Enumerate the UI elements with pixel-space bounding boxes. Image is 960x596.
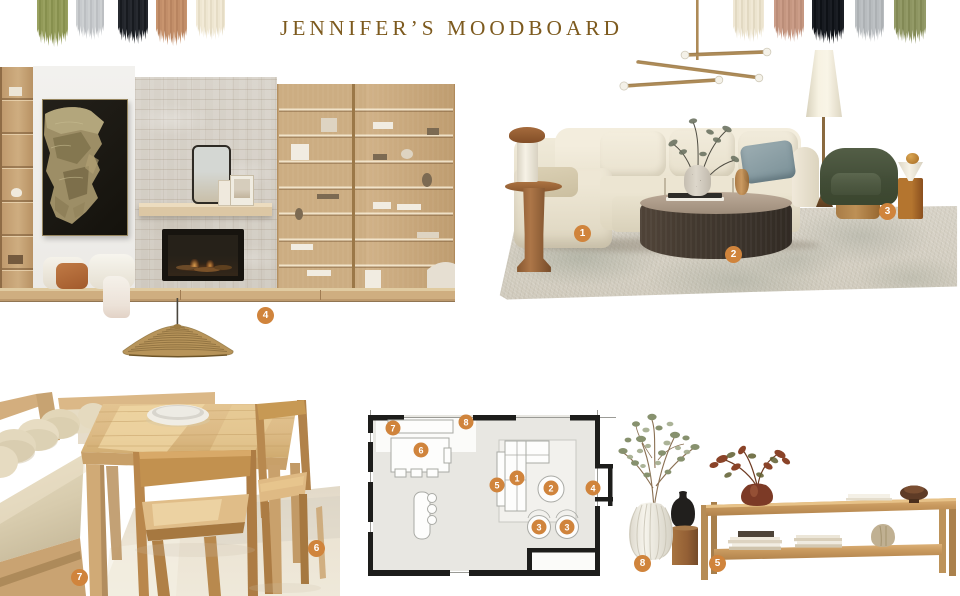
svg-text:1: 1 [514,473,519,483]
svg-text:5: 5 [494,480,499,490]
svg-text:7: 7 [390,423,395,433]
svg-text:6: 6 [418,445,423,455]
svg-text:3: 3 [536,522,541,532]
svg-text:2: 2 [548,483,553,493]
svg-text:3: 3 [564,522,569,532]
svg-text:8: 8 [463,417,468,427]
svg-text:4: 4 [590,483,595,493]
